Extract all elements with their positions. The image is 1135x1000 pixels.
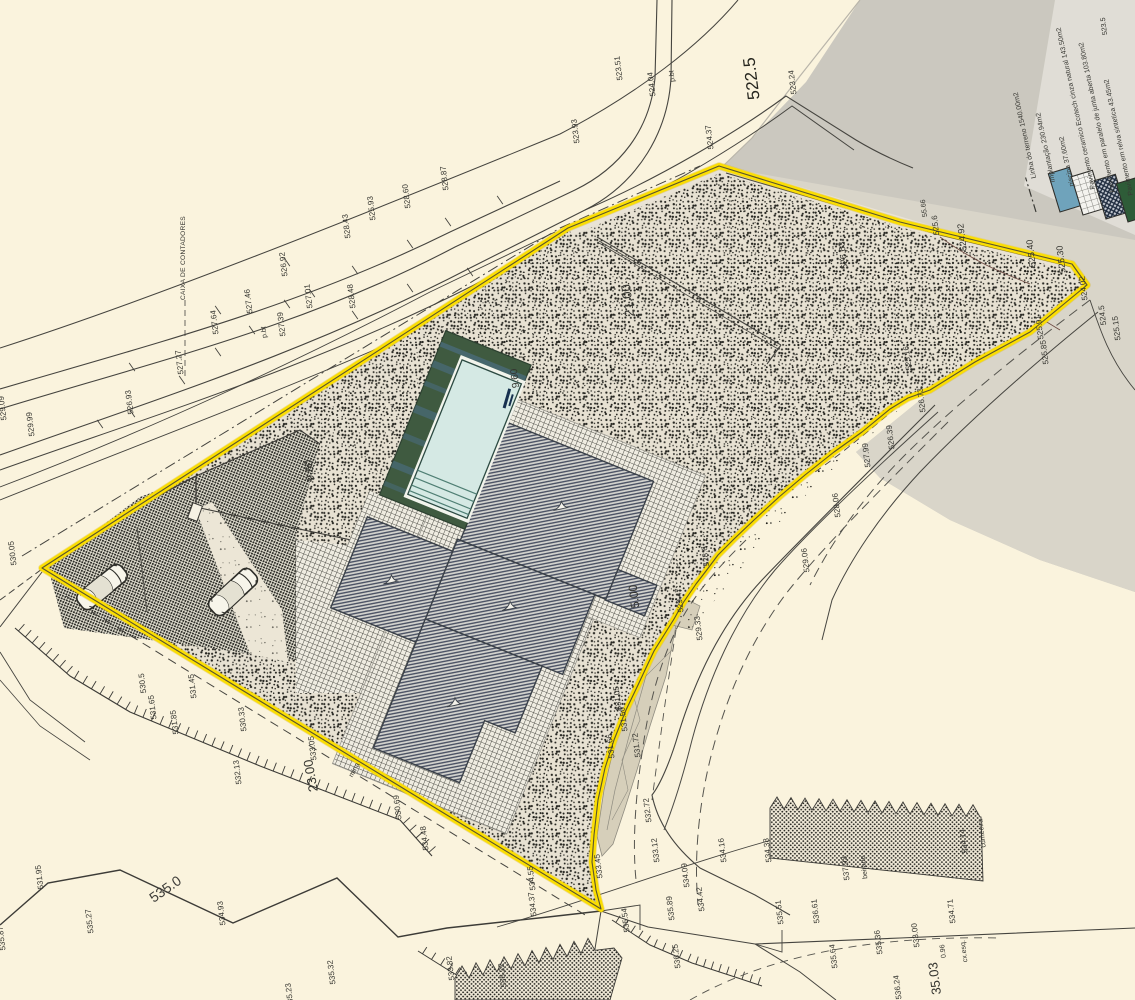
svg-text:5.00: 5.00 xyxy=(626,584,643,609)
svg-text:p.bt: p.bt xyxy=(260,326,268,338)
svg-text:p.bt: p.bt xyxy=(668,70,676,82)
svg-text:CAIXA DE CONTADORES: CAIXA DE CONTADORES xyxy=(180,216,187,300)
